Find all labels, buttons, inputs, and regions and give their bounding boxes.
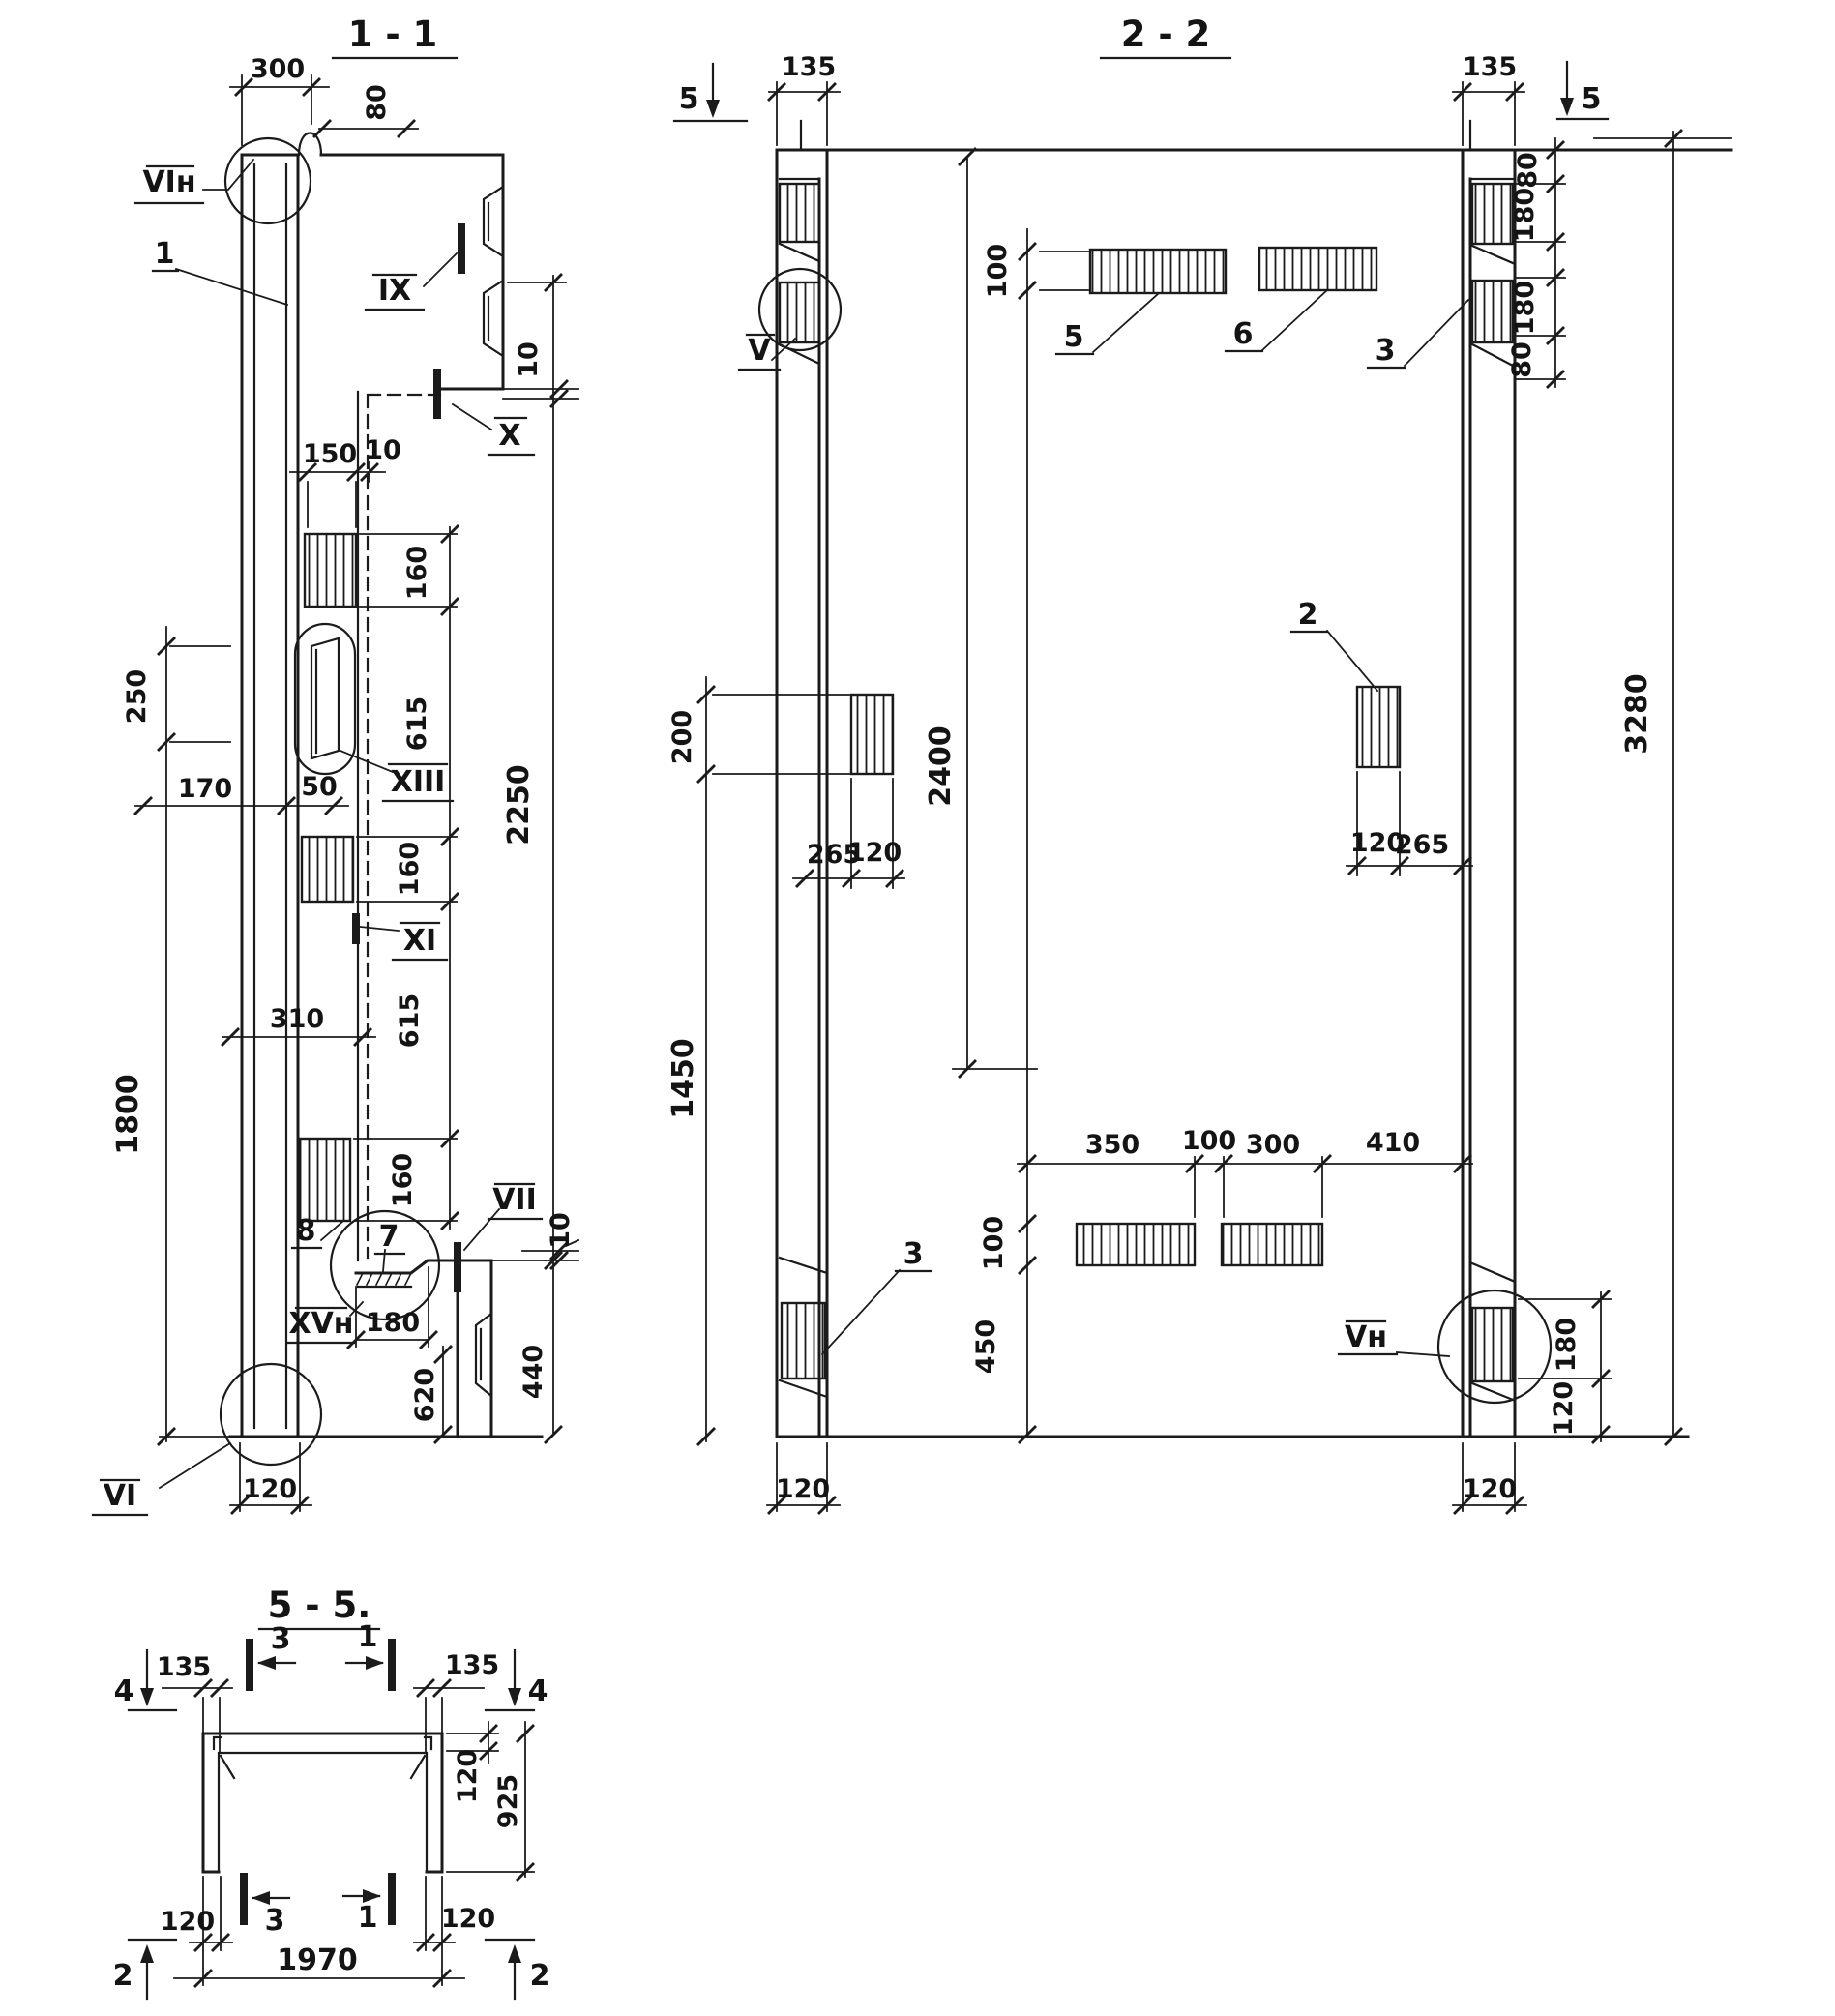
dim-text: 120: [1549, 1381, 1579, 1436]
cut-number: 1: [358, 1901, 378, 1935]
dim-text: 450: [971, 1319, 1001, 1374]
cut-number: 5: [679, 82, 699, 116]
cut-marker-3-top: 3: [250, 1622, 295, 1687]
anchor-bar-5: [1090, 250, 1226, 293]
view-label: XI: [403, 924, 436, 958]
view-label: XIII: [391, 765, 446, 799]
cut-number: 3: [271, 1622, 291, 1656]
cut-number: 3: [265, 1904, 285, 1938]
cut-marker-2-right: 2: [486, 1940, 549, 1999]
section-5-5: 5 - 5. 4 4 3: [113, 1585, 550, 1999]
weld-label: VIн: [142, 165, 195, 199]
dim-text: 615: [395, 993, 425, 1048]
drawing-canvas: 1 - 1: [0, 0, 1835, 2016]
section-5-5-title: 5 - 5.: [268, 1585, 371, 1626]
dim-text: 120: [847, 838, 902, 868]
drawing-sheet: 1 - 1: [0, 0, 1835, 2016]
anchor-square-left: [851, 695, 893, 774]
cut-number: 5: [1582, 82, 1602, 116]
detail-circle-vi: [221, 1364, 321, 1465]
dim-text: 180: [366, 1308, 420, 1338]
dim-text: 310: [270, 1004, 324, 1034]
dim-text: 80: [1507, 341, 1537, 378]
anchor-plate-hatch: [305, 534, 356, 607]
dim-text: 150: [303, 439, 357, 469]
pos-label: 6: [1233, 317, 1254, 351]
cut-marker-1-top: 1: [346, 1620, 392, 1687]
dim-text: 440: [518, 1345, 548, 1399]
weld-label: Vн: [1345, 1320, 1387, 1354]
anchor-square-2: [1357, 687, 1400, 767]
dim-text: 925: [493, 1774, 523, 1828]
dim-text: 180: [1510, 281, 1540, 335]
dim-text: 620: [410, 1368, 440, 1422]
pos-label: 3: [903, 1237, 924, 1271]
dim-text: 80: [362, 84, 392, 121]
dim-text: 135: [445, 1650, 499, 1680]
dim-text: 100: [1182, 1126, 1236, 1156]
cut-marker-5-right: 5: [1557, 62, 1608, 119]
dim-text: 100: [983, 244, 1013, 298]
dim-text: 120: [453, 1749, 483, 1803]
dim-text: 1970: [277, 1943, 358, 1977]
dim-text: 10: [546, 1212, 576, 1249]
view-label: XVн: [288, 1307, 353, 1341]
cut-number: 4: [528, 1675, 548, 1708]
anchor-bar-lower-right: [1222, 1224, 1322, 1265]
cut-marker-3-bottom: 3: [244, 1877, 289, 1938]
cut-number: 2: [530, 1959, 550, 1993]
dim-text: 160: [402, 546, 432, 600]
section-2-2-title: 2 - 2: [1121, 14, 1211, 55]
anchor-plate-hatch: [300, 1139, 350, 1221]
dim-text: 300: [1246, 1130, 1300, 1160]
weld-label: V: [748, 334, 771, 368]
cut-marker-2-left: 2: [113, 1940, 176, 1999]
view-label: VII: [492, 1183, 537, 1217]
dim-text: 135: [1463, 52, 1517, 82]
dim-text: 2400: [924, 726, 958, 807]
dim-text: 10: [514, 341, 544, 378]
section-2-2: 2 - 2: [666, 14, 1731, 1514]
dim-text: 80: [1513, 152, 1543, 189]
dim-text: 300: [251, 54, 305, 84]
anchor-plate-hatch: [302, 837, 353, 902]
leaders-2-2: [772, 290, 1468, 1356]
dim-text: 135: [782, 52, 836, 82]
cut-number: 2: [113, 1959, 133, 1993]
dim-text: 250: [122, 669, 152, 724]
pos-label: 1: [155, 237, 175, 271]
dim-text: 100: [979, 1216, 1009, 1270]
dim-text: 180: [1552, 1318, 1582, 1372]
dim-text: 120: [243, 1474, 297, 1504]
dim-text: 120: [776, 1474, 830, 1504]
anchor-bar-lower-left: [1077, 1224, 1195, 1265]
view-label: X: [498, 419, 520, 453]
pos-label: 8: [296, 1214, 316, 1248]
dimension-lines-2-2: [706, 82, 1731, 1511]
dim-text: 120: [1463, 1474, 1517, 1504]
dim-text: 2250: [502, 764, 536, 845]
dim-text: 350: [1085, 1130, 1139, 1160]
dim-text: 200: [667, 710, 697, 764]
pos-label: 2: [1298, 598, 1318, 632]
dim-text: 120: [161, 1907, 215, 1937]
dim-ticks-5-5: [194, 1679, 534, 1987]
cut-marker-5-left: 5: [674, 64, 747, 121]
cut-number: 4: [114, 1675, 134, 1708]
dim-text: 265: [1395, 830, 1449, 860]
dim-text: 160: [395, 842, 425, 896]
dim-text: 615: [402, 697, 432, 751]
weld-label: VI: [104, 1479, 136, 1513]
dim-text: 135: [157, 1652, 211, 1682]
section-1-1: 1 - 1: [93, 14, 578, 1515]
view-label: IX: [378, 274, 411, 308]
dim-text: 170: [178, 774, 232, 804]
channel-outline: [203, 1734, 442, 1872]
dim-text: 1800: [111, 1074, 145, 1155]
dim-text: 160: [388, 1153, 418, 1207]
cut-marker-1-bottom: 1: [343, 1877, 392, 1935]
dim-text: 120: [441, 1904, 495, 1934]
section-1-1-title: 1 - 1: [348, 14, 438, 55]
dim-text: 50: [301, 772, 338, 802]
dim-text: 1450: [666, 1038, 700, 1119]
dim-text: 410: [1366, 1128, 1420, 1158]
pos-label: 5: [1064, 320, 1084, 354]
pos-label: 3: [1376, 334, 1396, 368]
cut-number: 1: [358, 1620, 378, 1654]
anchor-bar-6: [1259, 248, 1376, 290]
dim-text: 3280: [1620, 673, 1654, 755]
dim-text: 180: [1510, 188, 1540, 242]
slot-detail: [295, 624, 355, 774]
dim-text: 10: [365, 435, 401, 465]
pos-label: 7: [379, 1220, 400, 1254]
